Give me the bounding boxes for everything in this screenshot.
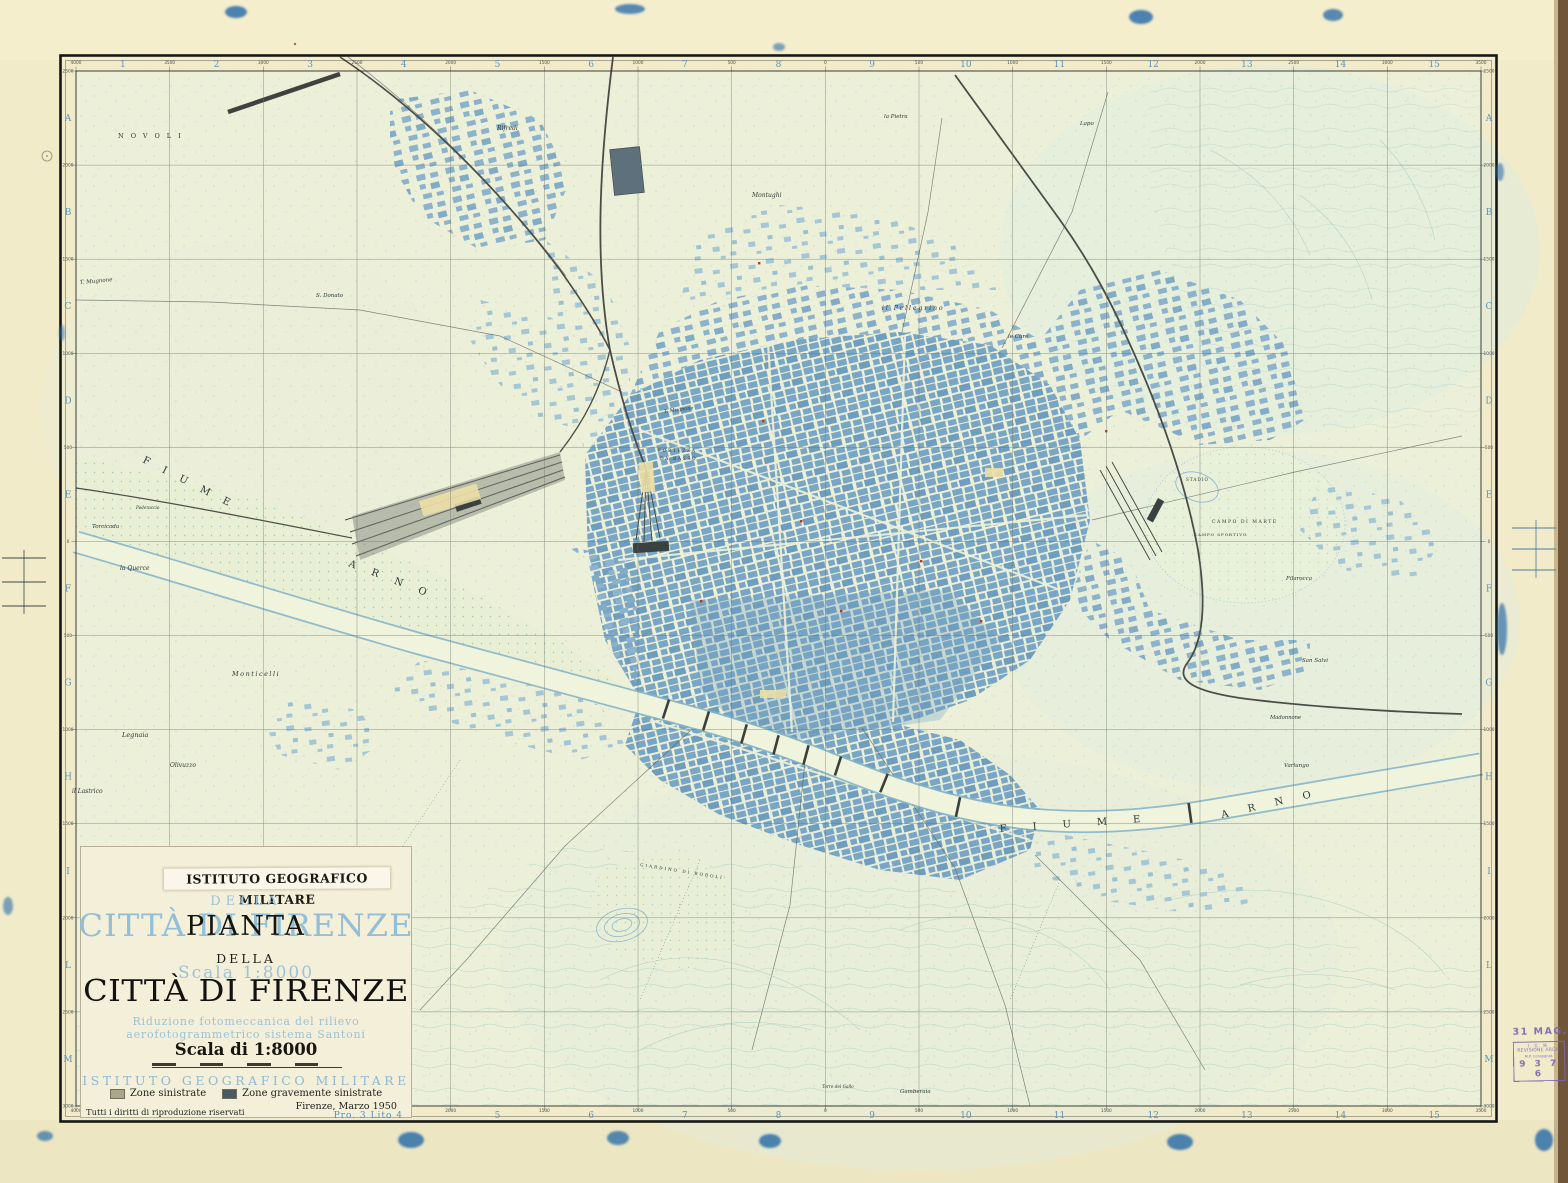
legend: Zone sinistrateZone gravemente sinistrat… <box>81 1088 411 1099</box>
grid-coordinate: 500 <box>728 1108 736 1114</box>
grid-coordinate: 1500 <box>63 257 74 263</box>
grid-coordinate: 500 <box>64 445 72 451</box>
grid-column-label: 15 <box>1428 1111 1440 1121</box>
grid-coordinate: 0 <box>824 1108 827 1114</box>
ghost-della: DELLA <box>81 894 411 909</box>
legend-label: Zone gravemente sinistrate <box>242 1088 382 1099</box>
place-label: CAMPO DI MARTE <box>1212 519 1278 525</box>
grid-coordinate: 1000 <box>1007 1108 1018 1114</box>
stamp-number: 9 3 7 6 <box>1516 1059 1562 1080</box>
scanned-map-sheet: 1122334455667788991010111112121313141415… <box>0 0 1568 1183</box>
grid-coordinate: 2000 <box>63 163 74 169</box>
imprint-litho: Pro. 3 Lito 4 <box>334 1111 403 1121</box>
grid-row-label: A <box>1485 114 1493 124</box>
grid-coordinate: 0 <box>67 539 70 545</box>
place-label: la Querce <box>120 565 150 572</box>
place-label: Poderaccio <box>135 505 160 510</box>
legend-item: Zone gravemente sinistrate <box>222 1088 382 1099</box>
stamp-line-2: REVISIONE ARCH. <box>1516 1048 1562 1054</box>
grid-coordinate: 2000 <box>63 915 74 921</box>
grid-row-label: I <box>1487 867 1491 877</box>
grid-coordinate: 2500 <box>1484 1009 1495 1015</box>
legend-swatch <box>222 1089 237 1099</box>
grid-coordinate: 1500 <box>539 60 550 66</box>
grid-coordinate: 500 <box>64 633 72 639</box>
grid-coordinate: 3000 <box>1484 1104 1495 1110</box>
grid-coordinate: 4000 <box>71 60 82 66</box>
scale-bar <box>152 1063 342 1068</box>
place-label: le Cure <box>1008 334 1029 340</box>
grid-column-label: 11 <box>1054 1111 1065 1121</box>
grid-row-label: E <box>1486 490 1493 500</box>
place-label: CAMPO SPORTIVO <box>1194 532 1247 537</box>
grid-column-label: 8 <box>776 1111 782 1121</box>
ghost-institute: ISTITUTO GEOGRAFICO MILITARE <box>81 1073 411 1088</box>
grid-coordinate: 1500 <box>1484 257 1495 263</box>
grid-row-label: G <box>64 679 71 689</box>
grid-row-label: F <box>65 585 71 595</box>
place-label: Monticelli <box>231 670 280 678</box>
grid-column-label: 5 <box>495 60 501 70</box>
grid-column-label: 13 <box>1241 60 1253 70</box>
grid-column-label: 7 <box>682 60 688 70</box>
ghost-note-1: Riduzione fotomeccanica del rilievo <box>81 1015 411 1028</box>
grid-row-label: H <box>1485 773 1493 783</box>
grid-coordinate: 1000 <box>1484 727 1495 733</box>
grid-column-label: 4 <box>401 60 407 70</box>
igm-revision-box: I. G. M. REVISIONE ARCH. M.P. Consegnat.… <box>1513 1041 1566 1082</box>
grid-row-label: C <box>65 302 72 312</box>
place-label: Madonnone <box>1269 715 1301 721</box>
grid-coordinate: 2000 <box>445 60 456 66</box>
grid-coordinate: 2500 <box>352 60 363 66</box>
grid-coordinate: 1500 <box>1101 1108 1112 1114</box>
grid-coordinate: 1000 <box>1484 351 1495 357</box>
place-label: DA BASSO <box>660 456 697 462</box>
grid-column-label: 13 <box>1241 1111 1253 1121</box>
grid-coordinate: 500 <box>728 60 736 66</box>
grid-row-label: M <box>1484 1055 1493 1065</box>
grid-column-label: 1 <box>120 60 126 70</box>
grid-coordinate: 2000 <box>445 1108 456 1114</box>
grid-coordinate: 1500 <box>1101 60 1112 66</box>
grid-coordinate: 500 <box>915 1108 923 1114</box>
grid-coordinate: 2000 <box>1484 163 1495 169</box>
place-label: Filarocca <box>1285 576 1312 582</box>
grid-coordinate: 1000 <box>633 60 644 66</box>
legend-swatch <box>110 1089 125 1099</box>
grid-column-label: 14 <box>1335 1111 1347 1121</box>
grid-coordinate: 1500 <box>539 1108 550 1114</box>
place-label: Gamberaia <box>900 1089 931 1095</box>
legend-label: Zone sinistrate <box>130 1088 206 1099</box>
grid-row-label: A <box>64 114 72 124</box>
grid-coordinate: 2500 <box>63 69 74 75</box>
grid-coordinate: 500 <box>1485 633 1493 639</box>
grid-coordinate: 3000 <box>63 1104 74 1110</box>
grid-column-label: 12 <box>1147 60 1158 70</box>
place-label: Torcicoda <box>92 524 119 530</box>
grid-coordinate: 2000 <box>1195 60 1206 66</box>
binding-edge <box>1558 0 1568 1183</box>
grid-column-label: 15 <box>1428 60 1440 70</box>
grid-coordinate: 2500 <box>1484 69 1495 75</box>
grid-row-label: F <box>1486 585 1492 595</box>
title-citta-di-firenze: CITTÀ DI FIRENZE <box>69 974 422 1009</box>
grid-coordinate: 1000 <box>1007 60 1018 66</box>
place-label: Montughi <box>751 192 782 199</box>
grid-column-label: 7 <box>682 1111 688 1121</box>
grid-column-label: 14 <box>1335 60 1347 70</box>
grid-row-label: L <box>65 961 71 971</box>
place-label: Rifredi <box>496 125 518 132</box>
grid-row-label: D <box>64 396 71 406</box>
grid-coordinate: 500 <box>915 60 923 66</box>
grid-coordinate: 3500 <box>1476 60 1487 66</box>
grid-coordinate: 1000 <box>63 727 74 733</box>
grid-column-label: 10 <box>960 1111 972 1121</box>
grid-row-label: M <box>63 1055 72 1065</box>
grid-row-label: B <box>65 208 72 218</box>
place-label: Olivuzzo <box>170 762 196 769</box>
grid-column-label: 6 <box>588 60 594 70</box>
grid-row-label: L <box>1486 961 1492 971</box>
grid-coordinate: 2000 <box>1195 1108 1206 1114</box>
grid-column-label: 10 <box>960 60 972 70</box>
grid-row-label: G <box>1485 679 1492 689</box>
grid-coordinate: 3500 <box>164 60 175 66</box>
grid-coordinate: 0 <box>1488 539 1491 545</box>
grid-column-label: 3 <box>307 60 313 70</box>
grid-column-label: 11 <box>1054 60 1065 70</box>
place-label: il Pellegrino <box>882 305 945 312</box>
place-label: Legnaia <box>121 731 148 739</box>
grid-coordinate: 3000 <box>258 60 269 66</box>
place-label: Varlungo <box>1284 763 1310 769</box>
place-label: Lapo <box>1079 121 1094 127</box>
place-label: S. Donato <box>316 293 344 299</box>
grid-coordinate: 1500 <box>63 821 74 827</box>
grid-row-label: H <box>64 773 72 783</box>
grid-column-label: 5 <box>495 1111 501 1121</box>
place-label: San Salvi <box>1302 658 1328 664</box>
place-label: NOVOLI <box>118 132 188 140</box>
grid-column-label: 8 <box>776 60 782 70</box>
grid-row-label: E <box>65 490 72 500</box>
grid-coordinate: 2500 <box>1288 1108 1299 1114</box>
grid-coordinate: 1000 <box>63 351 74 357</box>
grid-coordinate: 500 <box>1485 445 1493 451</box>
place-label: Torre del Gallo <box>822 1084 854 1089</box>
grid-coordinate: 2000 <box>1484 915 1495 921</box>
grid-coordinate: 1000 <box>633 1108 644 1114</box>
grid-row-label: D <box>1485 396 1492 406</box>
place-label: STADIO <box>1186 477 1209 482</box>
legend-item: Zone sinistrate <box>110 1088 206 1099</box>
place-label: la Pietra <box>884 114 908 120</box>
grid-column-label: 12 <box>1147 1111 1158 1121</box>
grid-coordinate: 2500 <box>1288 60 1299 66</box>
grid-coordinate: 3000 <box>1382 60 1393 66</box>
grid-coordinate: 0 <box>824 60 827 66</box>
rights-note: Tutti i diritti di riproduzione riservat… <box>86 1107 245 1117</box>
title-pianta: PIANTA <box>81 911 411 942</box>
grid-column-label: 9 <box>869 1111 875 1121</box>
grid-coordinate: 3000 <box>1382 1108 1393 1114</box>
scale-text: Scala di 1:8000 <box>81 1040 411 1059</box>
grid-coordinate: 2500 <box>63 1009 74 1015</box>
date-stamp: 31 MAG. 194 <box>1512 1025 1568 1038</box>
place-label: FORTEZZA <box>658 448 696 454</box>
grid-row-label: C <box>1486 302 1493 312</box>
grid-coordinate: 1500 <box>1484 821 1495 827</box>
grid-column-label: 2 <box>214 60 220 70</box>
grid-row-label: I <box>66 867 70 877</box>
pasted-header-strip: ISTITUTO GEOGRAFICO MILITARE <box>163 866 391 891</box>
grid-column-label: 9 <box>869 60 875 70</box>
grid-column-label: 6 <box>588 1111 594 1121</box>
revision-stamp: 31 MAG. 194 I. G. M. REVISIONE ARCH. M.P… <box>1512 1025 1568 1082</box>
grid-row-label: B <box>1486 208 1493 218</box>
place-label: il Lastrico <box>72 788 103 795</box>
title-block: ISTITUTO GEOGRAFICO MILITARE DELLA CITTÀ… <box>80 846 412 1118</box>
